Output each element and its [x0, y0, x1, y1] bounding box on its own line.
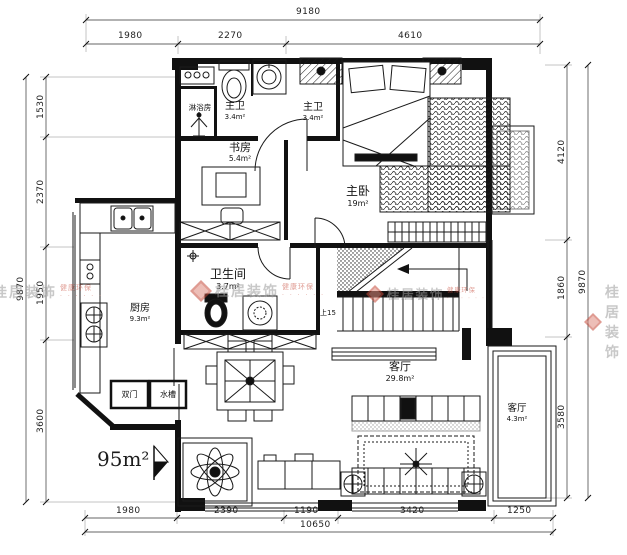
dim-bottom-seg1: 2390 [214, 506, 239, 516]
dim-right-overall: 9870 [578, 269, 588, 294]
dining-table-icon [206, 341, 294, 421]
dim-bottom-seg2: 1190 [294, 506, 319, 516]
bathroom-toilet-icon [205, 294, 227, 327]
stairs-up-note: 上15 [320, 308, 336, 318]
north-arrow-icon [148, 444, 172, 482]
kitchen-hob-icon [81, 303, 107, 347]
dim-left-seg3: 3600 [36, 408, 46, 433]
dim-top-seg0: 1980 [118, 31, 143, 41]
floorplan-drawing [0, 0, 627, 555]
flower-rug [178, 438, 252, 506]
dim-bottom-overall: 10650 [300, 520, 331, 530]
dim-left-overall: 9870 [16, 276, 26, 301]
room-label-bathroom: 卫生间 3.7m² [196, 268, 260, 291]
dim-right-seg1: 1860 [557, 275, 567, 300]
kitchen-corner-wall [77, 394, 114, 427]
desk-icon [202, 167, 260, 224]
toilet-icon [219, 61, 249, 102]
room-label-master-bath: 主卫 3.4m² [210, 101, 260, 121]
dim-left-seg2: 1950 [36, 280, 46, 305]
room-label-study: 书房 5.4m² [210, 142, 270, 163]
room-label-living: 客厅 29.8m² [370, 361, 430, 383]
room-label-kitchen: 厨房 9.3m² [112, 303, 168, 323]
kitchen-sink-icon [111, 206, 153, 231]
floor-drain-icon [187, 250, 199, 262]
room-label-balcony: 客厅 4.3m² [494, 404, 540, 423]
dim-bottom-seg3: 3420 [400, 506, 425, 516]
kitchen-prep-icon [80, 260, 100, 284]
appliance-label-right: 水槽 [150, 389, 186, 400]
dim-bottom-seg0: 1980 [116, 506, 141, 516]
dim-top-overall: 9180 [296, 7, 321, 17]
tv-cabinet-icon [258, 454, 340, 489]
dim-right-seg2: 3580 [557, 404, 567, 429]
room-label-hall-bath: 主卫 3.4m² [288, 102, 338, 122]
appliance-label-left: 双门 [111, 389, 148, 400]
floorplan-canvas: 淋浴房 主卫 3.4m² 主卫 3.4m² 书房 5.4m² 主卧 19m² 卫… [0, 0, 627, 555]
dim-left-seg1: 2370 [36, 179, 46, 204]
bathroom-basin-icon [243, 296, 277, 330]
dim-bottom-seg4: 1250 [507, 506, 532, 516]
bed-icon [343, 62, 430, 166]
shower-head-icon [191, 112, 207, 136]
cabinet-strip-bathroom [184, 334, 316, 349]
dim-left-seg0: 1530 [36, 94, 46, 119]
cabinet-strip-study [180, 222, 280, 240]
room-label-master-bedroom: 主卧 19m² [330, 185, 386, 208]
round-basin-icon [253, 60, 286, 94]
wardrobe-icon [388, 222, 486, 242]
dim-right-seg0: 4120 [557, 139, 567, 164]
dim-top-seg1: 2270 [218, 31, 243, 41]
total-area-label: 95m² [97, 447, 149, 471]
stairs [332, 248, 467, 360]
balcony-windows [488, 346, 556, 506]
dim-top-seg2: 4610 [398, 31, 423, 41]
